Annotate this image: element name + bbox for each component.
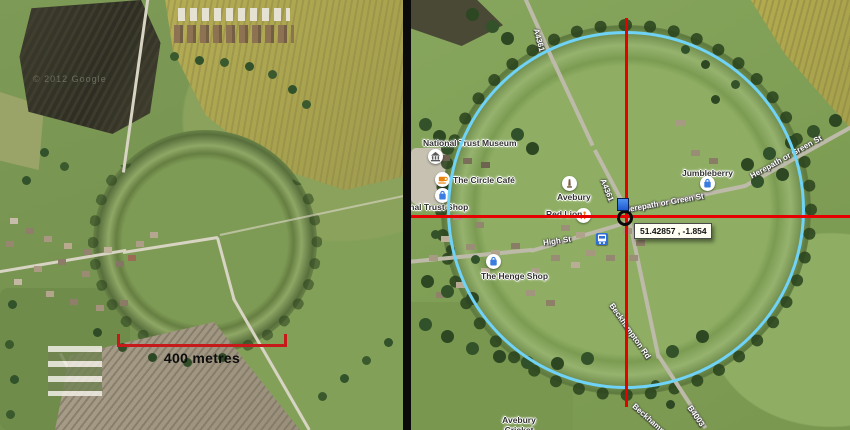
imagery-watermark: © 2012 Google bbox=[33, 74, 107, 84]
tree-cluster bbox=[0, 0, 9, 9]
caravan-park-row bbox=[174, 25, 294, 43]
aerial-photo-panel[interactable]: © 2012 Google 400 metres bbox=[0, 0, 403, 430]
map-pushpin-marker[interactable] bbox=[617, 198, 629, 211]
poi-label-cricket-line2: Cricket bbox=[499, 425, 539, 430]
road-label-b4003: B4003 bbox=[686, 404, 707, 428]
scale-bar bbox=[117, 334, 287, 347]
caravan-park-row bbox=[178, 8, 290, 21]
scale-bar-label: 400 metres bbox=[117, 350, 287, 366]
museum-icon[interactable] bbox=[428, 149, 443, 164]
target-ring-marker bbox=[617, 210, 633, 226]
satellite-map-panel[interactable]: National Trust Museum The Circle Café Na… bbox=[411, 0, 850, 430]
coordinates-tooltip: 51.42857 , -1.854 bbox=[634, 223, 712, 239]
ploughed-dark-field bbox=[411, 0, 503, 46]
polytunnel-rows bbox=[48, 346, 102, 396]
road-label-beckhampton-bottom: Beckhampton Rd bbox=[631, 402, 686, 430]
panel-divider bbox=[403, 0, 411, 430]
avebury-comparison-screenshot: © 2012 Google 400 metres bbox=[0, 0, 850, 430]
tree-cluster bbox=[411, 0, 420, 9]
poi-label-cricket-line1: Avebury bbox=[499, 415, 539, 425]
